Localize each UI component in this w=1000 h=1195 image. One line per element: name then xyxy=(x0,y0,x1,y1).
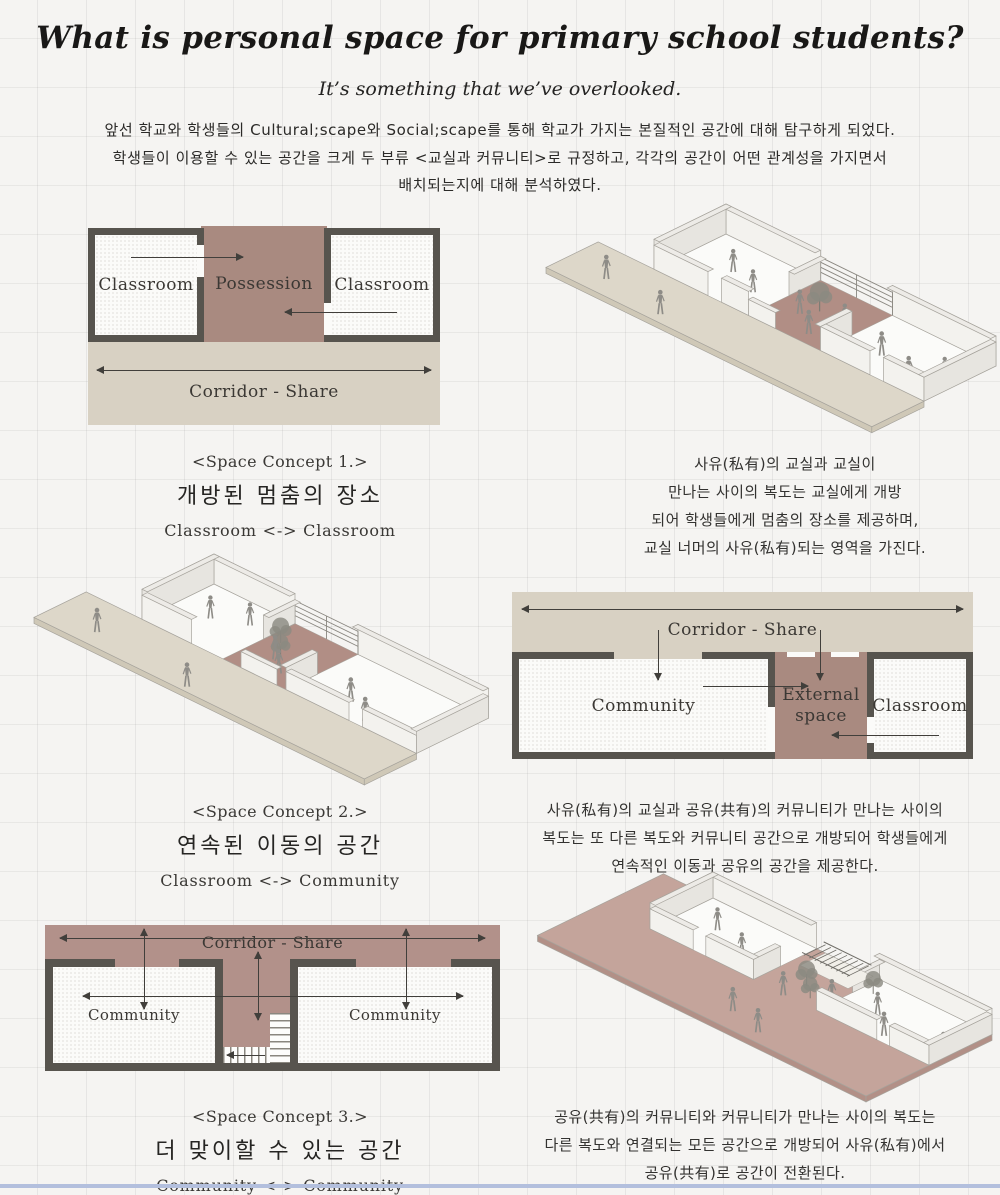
page-title: What is personal space for primary schoo… xyxy=(0,20,1000,56)
community-room-right: Community xyxy=(290,959,500,1071)
desc-line: 다른 복도와 연결되는 모든 공간으로 개방되어 사유(私有)에서 xyxy=(500,1131,990,1159)
concept-title: 연속된 이동의 공간 xyxy=(80,828,480,860)
classroom-left: Classroom xyxy=(88,228,204,342)
concept-title: 더 맞이할 수 있는 공간 xyxy=(80,1133,480,1165)
intro-line: 학생들이 이용할 수 있는 공간을 크게 두 부류 <교실과 커뮤니티>로 규정… xyxy=(30,145,970,173)
concept-tag: <Space Concept 3.> xyxy=(80,1107,480,1126)
arrow-updown-icon xyxy=(406,929,407,1009)
desc-line: 만나는 사이의 복도는 교실에게 개방 xyxy=(570,478,1000,506)
isometric-concept3 xyxy=(508,864,1000,1104)
concept-subtitle: Classroom <-> Community xyxy=(80,871,480,890)
arrow-leftright-icon xyxy=(97,370,431,371)
concept-tag: <Space Concept 2.> xyxy=(80,802,480,821)
classroom-right: Classroom xyxy=(324,228,440,342)
arrow-left-icon xyxy=(227,1055,265,1056)
isometric-concept1 xyxy=(538,196,1000,444)
arrow-right-icon xyxy=(131,257,243,258)
door-gap xyxy=(197,245,204,277)
door-gap xyxy=(324,303,331,335)
classroom-room: Classroom xyxy=(867,652,973,759)
corridor-label: Corridor - Share xyxy=(88,382,440,402)
arrow-down-icon xyxy=(658,630,659,680)
arrow-updown-icon xyxy=(258,952,259,1020)
caption-concept1: <Space Concept 1.> 개방된 멈춤의 장소 Classroom … xyxy=(80,452,480,540)
external-space-label: External xyxy=(782,685,860,706)
concept-tag: <Space Concept 1.> xyxy=(80,452,480,471)
possession-label: Possession xyxy=(215,274,313,294)
external-space-label: space xyxy=(795,706,847,727)
possession-area: Possession xyxy=(201,226,327,342)
desc-line: 교실 너머의 사유(私有)되는 영역을 가진다. xyxy=(570,534,1000,562)
community-room-left: Community xyxy=(45,959,223,1071)
arrow-leftright-icon xyxy=(60,938,485,939)
wall-segment xyxy=(223,1063,290,1071)
concept-title: 개방된 멈춤의 장소 xyxy=(80,478,480,510)
community-label: Community xyxy=(592,696,696,716)
corridor-area: Corridor - Share xyxy=(512,592,973,652)
description-concept1: 사유(私有)의 교실과 교실이 만나는 사이의 복도는 교실에게 개방 되어 학… xyxy=(570,450,1000,562)
desc-line: 공유(共有)로 공간이 전환된다. xyxy=(500,1159,990,1187)
page-subtitle: It’s something that we’ve overlooked. xyxy=(0,78,1000,100)
classroom-label: Classroom xyxy=(334,275,429,295)
arrow-updown-icon xyxy=(144,929,145,1009)
arrow-left-icon xyxy=(832,735,939,736)
external-space-area: External space xyxy=(775,652,867,759)
isometric-concept2 xyxy=(18,538,490,796)
arrow-down-icon xyxy=(820,630,821,680)
door-gap xyxy=(768,707,775,752)
arrow-left-icon xyxy=(285,312,397,313)
desc-line: 사유(私有)의 교실과 교실이 xyxy=(570,450,1000,478)
caption-concept3: <Space Concept 3.> 더 맞이할 수 있는 공간 Communi… xyxy=(80,1107,480,1195)
community-room: Community xyxy=(512,652,775,759)
plan-diagram-concept1: Possession Corridor - Share Classroom Cl… xyxy=(88,226,440,425)
intro-line: 앞선 학교와 학생들의 Cultural;scape와 Social;scape… xyxy=(30,117,970,145)
plan-diagram-concept2: Corridor - Share External space Communit… xyxy=(512,592,973,759)
desc-line: 복도는 또 다른 복도와 커뮤니티 공간으로 개방되어 학생들에게 xyxy=(505,824,985,852)
corridor-label: Corridor - Share xyxy=(512,620,973,640)
door-gap xyxy=(356,959,451,967)
intro-paragraph: 앞선 학교와 학생들의 Cultural;scape와 Social;scape… xyxy=(30,117,970,200)
community-label: Community xyxy=(88,1006,180,1024)
door-gap xyxy=(787,652,815,657)
plan-diagram-concept3: Corridor - Share Community Community xyxy=(45,925,500,1073)
classroom-label: Classroom xyxy=(872,696,967,716)
corridor-area: Corridor - Share xyxy=(45,925,500,959)
desc-line: 되어 학생들에게 멈춤의 장소를 제공하며, xyxy=(570,506,1000,534)
stairs-icon xyxy=(270,1013,290,1063)
arrow-right-icon xyxy=(703,686,808,687)
desc-line: 사유(私有)의 교실과 공유(共有)의 커뮤니티가 만나는 사이의 xyxy=(505,796,985,824)
description-concept3: 공유(共有)의 커뮤니티와 커뮤니티가 만나는 사이의 복도는 다른 복도와 연… xyxy=(500,1103,990,1187)
bottom-accent-bar xyxy=(0,1184,1000,1188)
door-gap xyxy=(867,717,874,743)
door-gap xyxy=(831,652,859,657)
corridor-label: Corridor - Share xyxy=(45,933,500,952)
corridor-area: Corridor - Share xyxy=(88,342,440,425)
door-gap xyxy=(115,959,179,967)
caption-concept2: <Space Concept 2.> 연속된 이동의 공간 Classroom … xyxy=(80,802,480,890)
desc-line: 공유(共有)의 커뮤니티와 커뮤니티가 만나는 사이의 복도는 xyxy=(500,1103,990,1131)
classroom-label: Classroom xyxy=(98,275,193,295)
community-label: Community xyxy=(349,1006,441,1024)
arrow-leftright-icon xyxy=(522,609,963,610)
poster-page: { "header": { "title": "What is personal… xyxy=(0,0,1000,1188)
